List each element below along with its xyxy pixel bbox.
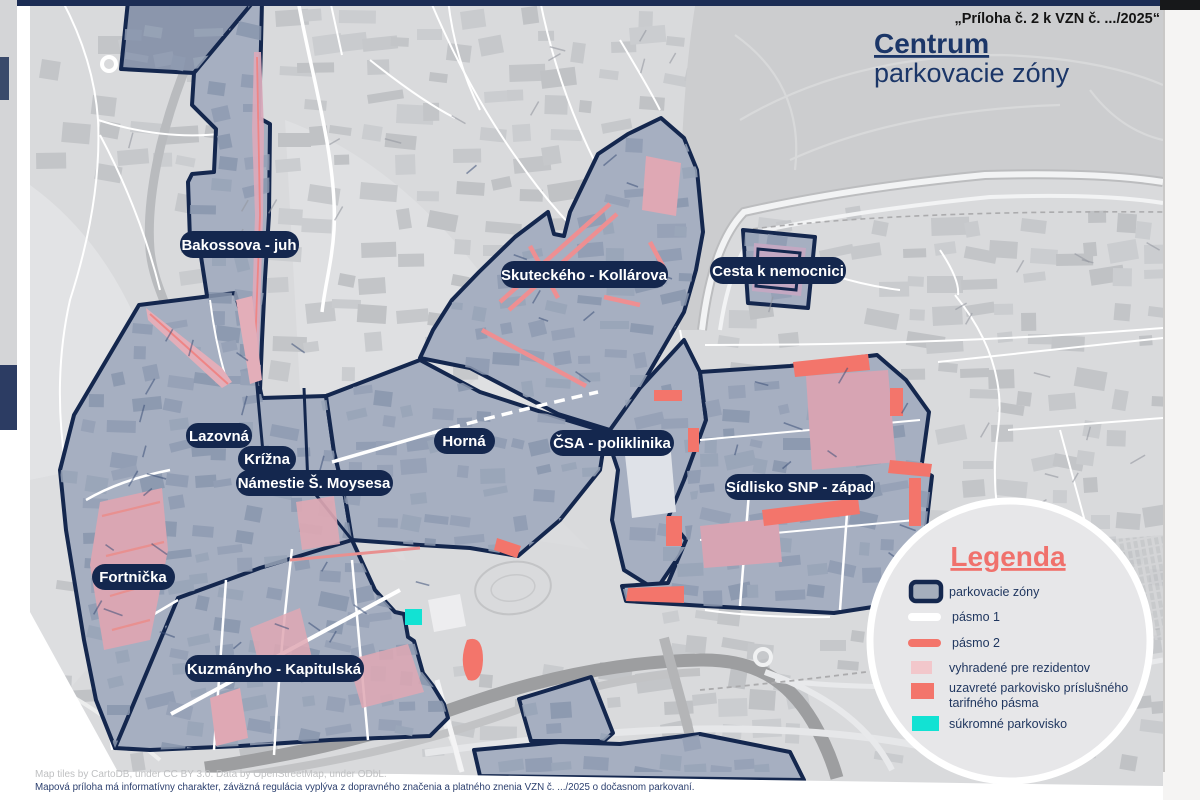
svg-text:Centrum: Centrum [874, 28, 989, 59]
svg-text:Lazovná: Lazovná [189, 428, 250, 445]
svg-text:Legenda: Legenda [950, 541, 1066, 572]
svg-text:uzavreté parkovisko príslušnéh: uzavreté parkovisko príslušného [949, 681, 1128, 695]
svg-text:súkromné parkovisko: súkromné parkovisko [949, 717, 1067, 731]
svg-text:Horná: Horná [442, 433, 486, 450]
svg-text:Námestie Š. Moysesa: Námestie Š. Moysesa [238, 474, 391, 492]
svg-text:pásmo 2: pásmo 2 [952, 636, 1000, 650]
svg-text:Skuteckého - Kollárova: Skuteckého - Kollárova [501, 267, 668, 284]
svg-text:Fortnička: Fortnička [99, 569, 167, 586]
svg-text:ČSA - poliklinika: ČSA - poliklinika [553, 434, 671, 452]
svg-text:tarifného pásma: tarifného pásma [949, 696, 1039, 710]
svg-text:Cesta k nemocnici: Cesta k nemocnici [712, 263, 844, 280]
svg-text:Krížna: Krížna [244, 451, 291, 468]
svg-text:Mapová príloha má informatívny: Mapová príloha má informatívny charakter… [35, 782, 695, 793]
svg-text:Bakossova - juh: Bakossova - juh [181, 237, 296, 254]
svg-text:Sídlisko SNP - západ: Sídlisko SNP - západ [726, 479, 874, 496]
svg-text:Map tiles by CartoDB, under CC: Map tiles by CartoDB, under CC BY 3.0. D… [35, 769, 387, 780]
svg-text:parkovacie zóny: parkovacie zóny [949, 585, 1040, 599]
svg-text:Kuzmányho - Kapitulská: Kuzmányho - Kapitulská [187, 661, 362, 678]
svg-text:pásmo 1: pásmo 1 [952, 610, 1000, 624]
svg-text:parkovacie zóny: parkovacie zóny [874, 58, 1070, 88]
svg-text:vyhradené pre rezidentov: vyhradené pre rezidentov [949, 661, 1091, 675]
svg-text:„Príloha č. 2 k VZN č. .../202: „Príloha č. 2 k VZN č. .../2025“ [954, 11, 1160, 27]
